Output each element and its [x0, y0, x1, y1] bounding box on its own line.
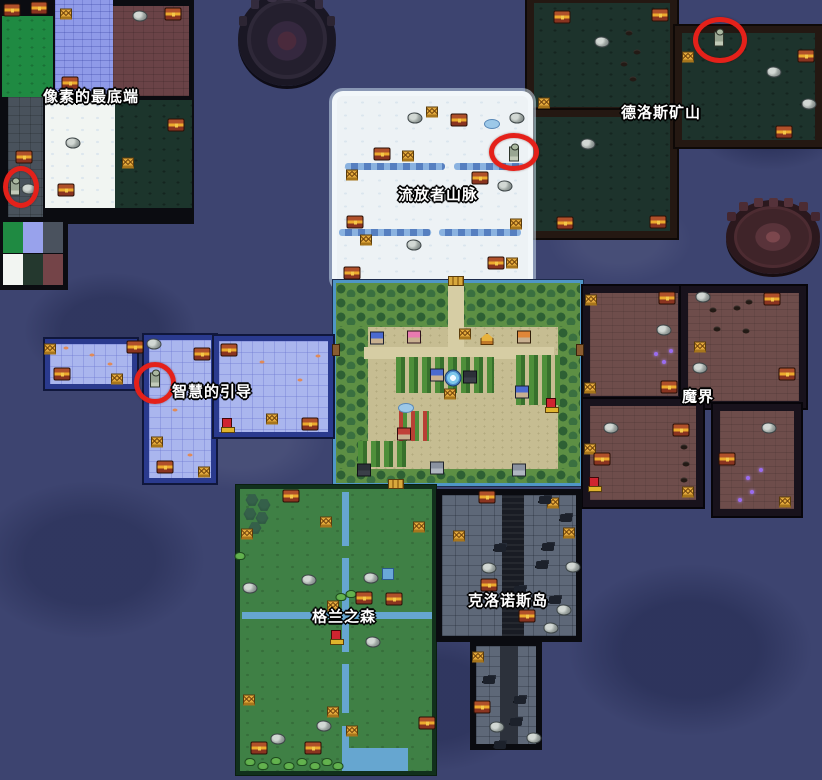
treasure-chest-icon [165, 8, 182, 21]
ore-icon [681, 478, 688, 483]
rock-icon [498, 181, 513, 192]
treasure-chest-icon [488, 257, 505, 270]
label-gran-forest: 格兰之森 [312, 606, 376, 627]
rock-icon [527, 733, 542, 744]
rock-icon [271, 734, 286, 745]
purple-sparkle-icon [669, 349, 673, 353]
rock-icon [408, 113, 423, 124]
terrain-grass-tile [3, 222, 23, 253]
rock-icon [147, 339, 162, 350]
gold-marker-icon [453, 531, 465, 542]
fountain-icon [445, 370, 462, 387]
terrain-snow-tile [3, 254, 23, 285]
debris-icon [549, 596, 561, 604]
gold-marker-icon [563, 528, 575, 539]
rock-icon [66, 138, 81, 149]
treasure-chest-icon [31, 2, 48, 15]
fish-icon [298, 379, 303, 382]
world-map: 像素的最底端 德洛斯矿山 流放者山脉 智慧的引导 魔界 克洛诺斯岛 格兰之森 [0, 0, 822, 780]
house-icon [397, 428, 411, 441]
gold-marker-icon [694, 342, 706, 353]
rock-icon [767, 67, 782, 78]
terrain-stone-tile [43, 222, 63, 253]
water-tile-icon [382, 568, 394, 580]
gold-marker-icon [510, 219, 522, 230]
bush-icon [284, 762, 295, 770]
ore-icon [621, 62, 628, 67]
terrain-maroon-tile [43, 254, 63, 285]
treasure-chest-icon [479, 491, 496, 504]
gold-marker-icon [459, 329, 471, 340]
gold-marker-icon [111, 374, 123, 385]
gold-marker-icon [413, 522, 425, 533]
region-kronos-island-main[interactable] [436, 489, 582, 642]
gold-marker-icon [426, 107, 438, 118]
ore-icon [683, 462, 690, 467]
house-icon [357, 464, 371, 477]
region-wisdom-guidance-west[interactable] [45, 339, 137, 389]
forest-river [342, 664, 349, 713]
rock-icon [482, 563, 497, 574]
ore-icon [681, 445, 688, 450]
treasure-chest-icon [4, 4, 21, 17]
rock-icon [566, 562, 581, 573]
fish-icon [90, 354, 95, 357]
rock-icon [510, 113, 525, 124]
treasure-chest-icon [374, 148, 391, 161]
debris-icon [510, 718, 522, 726]
bush-icon [333, 762, 344, 770]
rock-icon [366, 637, 381, 648]
house-icon [430, 462, 444, 475]
house-icon [515, 386, 529, 399]
treasure-chest-icon [305, 742, 322, 755]
gold-marker-icon [320, 517, 332, 528]
gold-marker-icon [243, 695, 255, 706]
gold-marker-icon [44, 344, 56, 355]
gold-marker-icon [682, 52, 694, 63]
gold-marker-icon [60, 9, 72, 20]
terrain-snow-tile [45, 100, 115, 208]
gold-marker-icon [682, 487, 694, 498]
treasure-chest-icon [356, 592, 373, 605]
treasure-chest-icon [168, 119, 185, 132]
treasure-chest-icon [519, 610, 536, 623]
label-delos-mine: 德洛斯矿山 [621, 102, 701, 123]
treasure-chest-icon [779, 368, 796, 381]
tree-band [336, 469, 580, 483]
rock-icon [581, 139, 596, 150]
terrain-darkgreen-tile [115, 100, 192, 208]
red-totem-icon [331, 630, 341, 642]
gold-marker-icon [327, 707, 339, 718]
bridge-icon [448, 276, 464, 286]
treasure-chest-icon [798, 50, 815, 63]
gold-marker-icon [346, 726, 358, 737]
house-icon [430, 369, 444, 382]
dock-icon [576, 344, 584, 356]
red-totem-icon [546, 398, 556, 410]
rock-icon [657, 325, 672, 336]
gold-marker-icon [122, 158, 134, 169]
label-wisdom-guidance: 智慧的引导 [172, 381, 252, 402]
gold-marker-icon [151, 437, 163, 448]
label-exile-mountains: 流放者山脉 [398, 184, 478, 205]
house-icon [407, 331, 421, 344]
forest-river [342, 558, 349, 612]
house-icon [512, 464, 526, 477]
treasure-chest-icon [594, 453, 611, 466]
ore-icon [714, 327, 721, 332]
debris-icon [514, 696, 526, 704]
rock-icon [693, 363, 708, 374]
treasure-chest-icon [557, 217, 574, 230]
dock-icon [332, 344, 340, 356]
rock-icon [243, 583, 258, 594]
treasure-chest-icon [776, 126, 793, 139]
treasure-chest-icon [344, 267, 361, 280]
treasure-chest-icon [673, 424, 690, 437]
red-circle-marker [3, 166, 39, 208]
treasure-chest-icon [652, 9, 669, 22]
purple-sparkle-icon [759, 468, 763, 472]
pond-icon [398, 403, 414, 413]
bush-icon [297, 758, 308, 766]
gold-marker-icon [779, 497, 791, 508]
purple-sparkle-icon [662, 360, 666, 364]
treasure-chest-icon [474, 701, 491, 714]
debris-icon [494, 741, 506, 749]
fish-icon [316, 355, 321, 358]
gold-marker-icon [360, 235, 372, 246]
forest-river [342, 492, 349, 546]
red-circle-marker [134, 362, 176, 404]
treasure-chest-icon [554, 11, 571, 24]
gold-marker-icon [584, 383, 596, 394]
gold-marker-icon [506, 258, 518, 269]
gold-marker-icon [266, 414, 278, 425]
rock-icon [364, 573, 379, 584]
rock-icon [490, 722, 505, 733]
ore-icon [630, 77, 637, 82]
rock-icon [696, 292, 711, 303]
bush-icon [245, 758, 256, 766]
ore-icon [746, 300, 753, 305]
red-totem-icon [222, 418, 232, 430]
ore-icon [710, 308, 717, 313]
terrain-brick-tile [23, 222, 43, 253]
bush-icon [310, 762, 321, 770]
treasure-chest-icon [251, 742, 268, 755]
treasure-chest-icon [661, 381, 678, 394]
forest-lake [342, 748, 408, 771]
gold-marker-icon [346, 170, 358, 181]
ruined-round-arena[interactable] [726, 200, 820, 274]
gold-marker-icon [198, 467, 210, 478]
treasure-chest-icon [451, 114, 468, 127]
purple-sparkle-icon [746, 476, 750, 480]
red-circle-marker [489, 133, 539, 171]
rock-icon [604, 423, 619, 434]
fish-icon [188, 454, 193, 457]
village-path [448, 283, 464, 353]
bush-icon [258, 762, 269, 770]
ore-icon [734, 306, 741, 311]
pond-icon [484, 119, 500, 129]
debris-icon [536, 561, 548, 569]
gold-marker-icon [585, 295, 597, 306]
debris-icon [542, 543, 554, 551]
treasure-chest-icon [347, 216, 364, 229]
ice-river [439, 229, 521, 236]
debris-icon [494, 544, 506, 552]
treasure-chest-icon [283, 490, 300, 503]
treasure-chest-icon [16, 151, 33, 164]
rock-icon [302, 575, 317, 586]
red-circle-marker [693, 17, 747, 63]
treasure-chest-icon [54, 368, 71, 381]
region-pixel-bottom-annex[interactable] [0, 218, 68, 290]
label-pixel-bottom: 像素的最底端 [43, 86, 139, 107]
purple-sparkle-icon [654, 352, 658, 356]
rock-icon [407, 240, 422, 251]
debris-icon [560, 514, 572, 522]
gold-marker-icon [472, 652, 484, 663]
bush-icon [235, 552, 246, 560]
treasure-chest-icon [650, 216, 667, 229]
terrain-darkgreen-tile [23, 254, 43, 285]
ore-icon [743, 329, 750, 334]
ore-icon [634, 50, 641, 55]
river-bridge-gap [287, 612, 297, 619]
gold-marker-icon [538, 98, 550, 109]
rock-icon [762, 423, 777, 434]
ice-river [339, 229, 431, 236]
debris-icon [539, 496, 551, 504]
treasure-chest-icon [419, 717, 436, 730]
treasure-chest-icon [764, 293, 781, 306]
ore-icon [626, 31, 633, 36]
fish-icon [108, 363, 113, 366]
purple-sparkle-icon [738, 498, 742, 502]
treasure-chest-icon [194, 348, 211, 361]
treasure-chest-icon [127, 341, 144, 354]
label-demon-realm: 魔界 [682, 386, 714, 407]
treasure-chest-icon [659, 292, 676, 305]
rock-icon [557, 605, 572, 616]
treasure-chest-icon [157, 461, 174, 474]
fish-icon [64, 347, 69, 350]
rock-icon [133, 11, 148, 22]
bush-icon [322, 758, 333, 766]
purple-sparkle-icon [750, 490, 754, 494]
fish-icon [173, 409, 178, 412]
rock-icon [595, 37, 610, 48]
fish-icon [260, 361, 265, 364]
debris-icon [483, 676, 495, 684]
treasure-chest-icon [386, 593, 403, 606]
treasure-chest-icon [719, 453, 736, 466]
house-icon [517, 331, 531, 344]
gold-marker-icon [241, 529, 253, 540]
bridge-icon [388, 479, 404, 489]
treasure-chest-icon [58, 184, 75, 197]
red-totem-icon [589, 477, 599, 489]
treasure-chest-icon [221, 344, 238, 357]
gold-marker-icon [402, 151, 414, 162]
gold-marker-icon [444, 389, 456, 400]
bush-icon [271, 757, 282, 765]
house-icon [463, 371, 477, 384]
label-kronos-island: 克洛诺斯岛 [468, 590, 548, 611]
house-icon [370, 332, 384, 345]
rock-icon [317, 721, 332, 732]
rock-icon [802, 99, 817, 110]
rock-icon [544, 623, 559, 634]
ice-river [345, 163, 445, 170]
treasure-chest-icon [302, 418, 319, 431]
